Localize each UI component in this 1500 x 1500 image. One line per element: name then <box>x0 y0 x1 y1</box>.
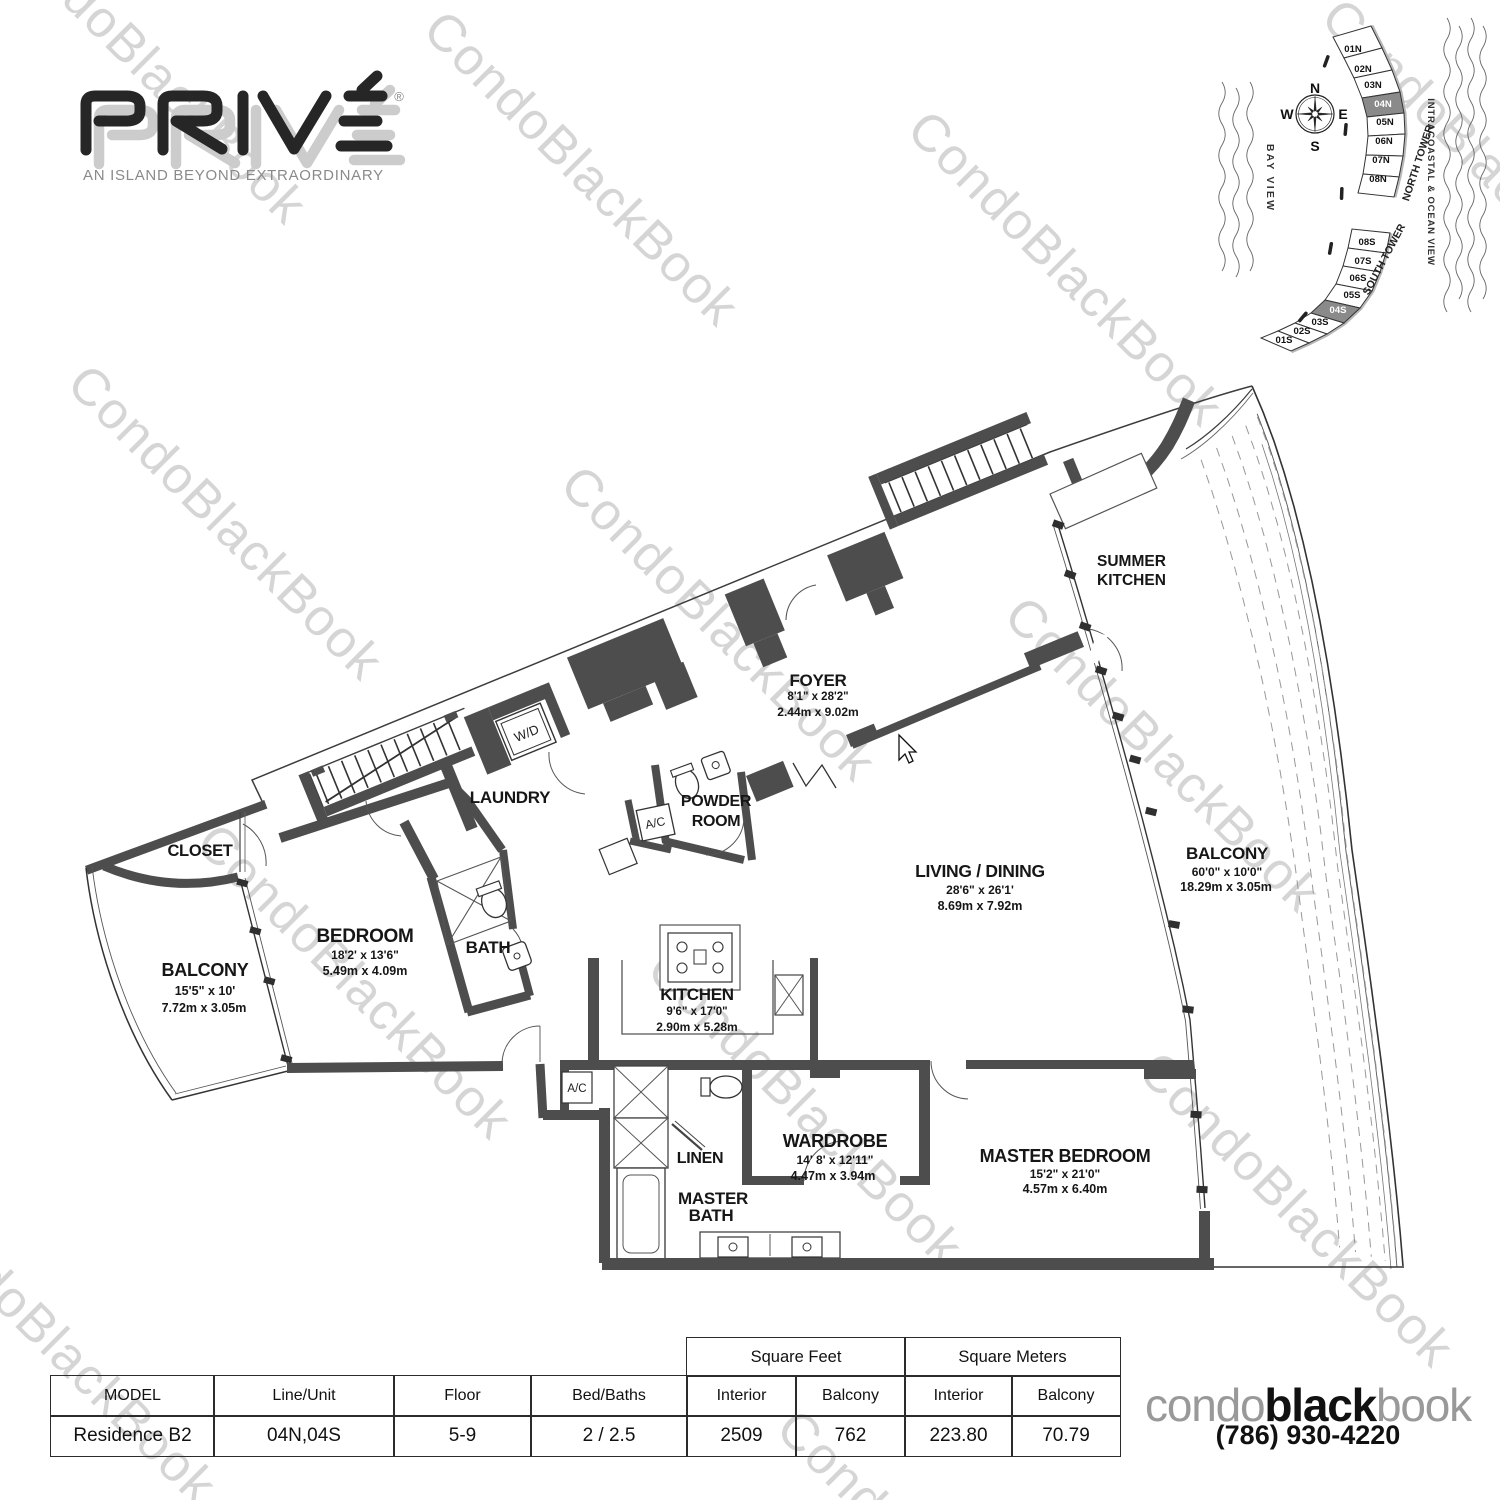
svg-text:7.72m x 3.05m: 7.72m x 3.05m <box>162 1001 247 1015</box>
svg-text:8'1" x 28'2": 8'1" x 28'2" <box>787 691 848 703</box>
svg-text:BATH: BATH <box>466 938 511 957</box>
svg-text:2.90m x 5.28m: 2.90m x 5.28m <box>656 1020 737 1034</box>
svg-text:BALCONY: BALCONY <box>1186 844 1269 863</box>
svg-text:18'2' x 13'6": 18'2' x 13'6" <box>331 948 399 962</box>
svg-text:SUMMER: SUMMER <box>1097 553 1166 570</box>
svg-text:5.49m x 4.09m: 5.49m x 4.09m <box>323 964 408 978</box>
svg-text:15'5" x 10': 15'5" x 10' <box>175 984 236 998</box>
svg-text:LINEN: LINEN <box>677 1150 724 1167</box>
svg-text:18.29m x 3.05m: 18.29m x 3.05m <box>1180 880 1272 894</box>
svg-text:BATH: BATH <box>689 1206 734 1225</box>
svg-text:28'6" x 26'1': 28'6" x 26'1' <box>946 883 1014 897</box>
svg-text:POWDER: POWDER <box>681 793 752 810</box>
svg-text:BALCONY: BALCONY <box>162 960 249 980</box>
svg-text:LIVING / DINING: LIVING / DINING <box>915 861 1045 881</box>
svg-text:KITCHEN: KITCHEN <box>660 985 733 1004</box>
svg-text:15'2" x 21'0": 15'2" x 21'0" <box>1030 1167 1100 1181</box>
svg-text:4.47m x 3.94m: 4.47m x 3.94m <box>791 1169 876 1183</box>
svg-text:BEDROOM: BEDROOM <box>316 926 413 947</box>
svg-text:FOYER: FOYER <box>789 671 846 690</box>
svg-text:4.57m x 6.40m: 4.57m x 6.40m <box>1023 1182 1108 1196</box>
svg-text:LAUNDRY: LAUNDRY <box>470 788 551 807</box>
svg-text:WARDROBE: WARDROBE <box>783 1131 888 1151</box>
svg-text:ROOM: ROOM <box>692 813 741 830</box>
svg-text:60'0" x 10'0": 60'0" x 10'0" <box>1192 865 1262 879</box>
svg-text:KITCHEN: KITCHEN <box>1097 572 1166 589</box>
svg-text:CLOSET: CLOSET <box>167 842 232 860</box>
svg-text:2.44m x 9.02m: 2.44m x 9.02m <box>777 705 858 719</box>
svg-text:MASTER BEDROOM: MASTER BEDROOM <box>980 1146 1151 1166</box>
svg-text:8.69m x 7.92m: 8.69m x 7.92m <box>938 899 1023 913</box>
svg-text:9'6" x 17'0": 9'6" x 17'0" <box>666 1006 727 1018</box>
svg-text:A/C: A/C <box>567 1083 586 1095</box>
svg-text:14' 8' x 12'11": 14' 8' x 12'11" <box>797 1153 874 1167</box>
